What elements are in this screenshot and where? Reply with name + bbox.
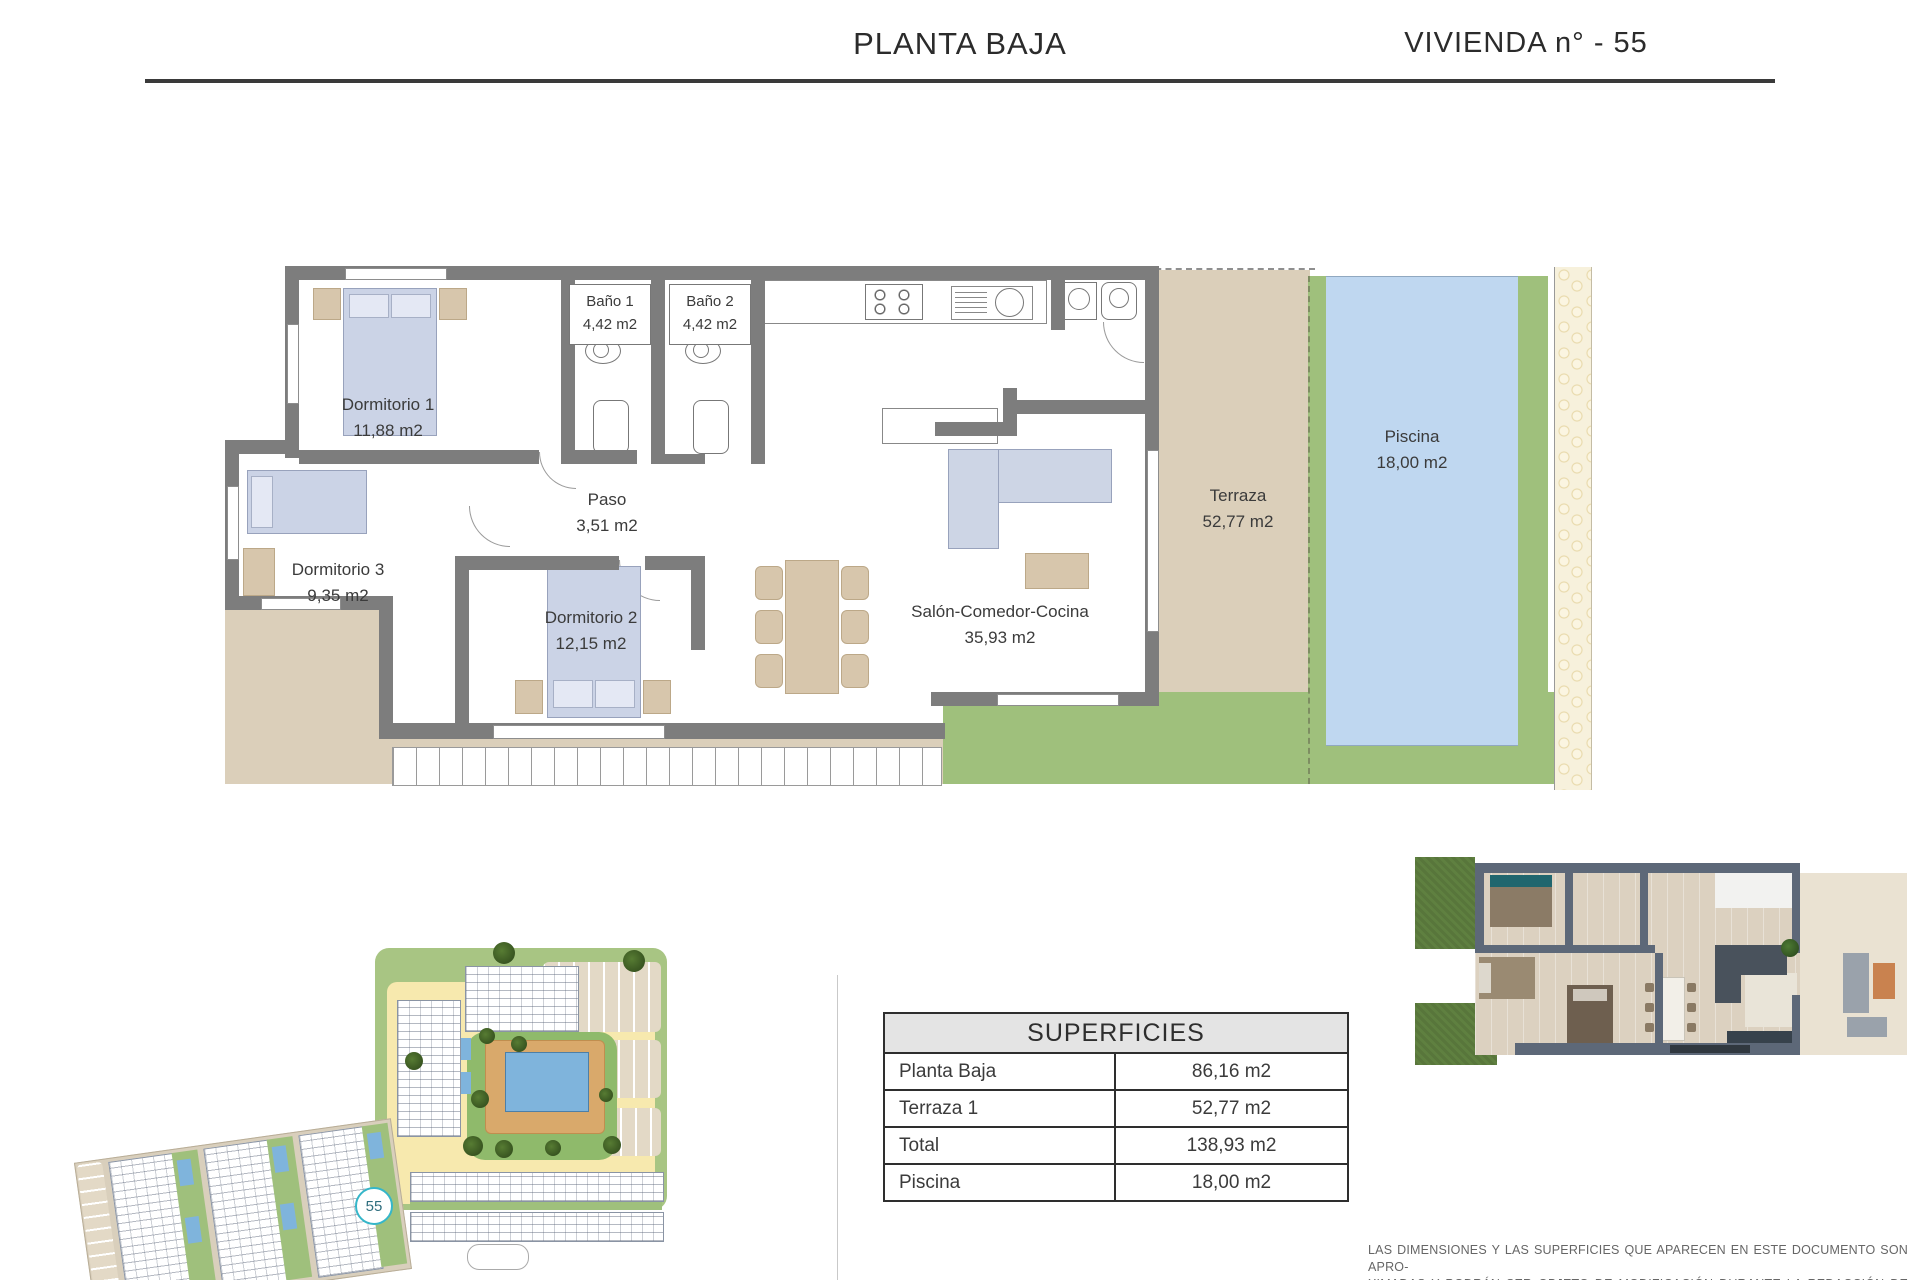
render-white-room — [1715, 873, 1795, 908]
nightstand — [515, 680, 543, 714]
page-title: PLANTA BAJA — [660, 26, 1260, 62]
chair — [841, 566, 869, 600]
sliding-door — [997, 694, 1119, 706]
wall — [575, 454, 615, 464]
wall — [751, 280, 765, 464]
room-name: Paso — [527, 487, 687, 513]
room-name: Dormitorio 1 — [288, 392, 488, 418]
room-name: Baño 1 — [570, 290, 650, 313]
render-3d — [1415, 845, 1912, 1067]
render-chair — [1645, 1003, 1654, 1012]
window — [345, 268, 447, 280]
wall — [645, 556, 705, 570]
shower — [593, 400, 629, 454]
tree-icon — [511, 1036, 527, 1052]
patio-left — [225, 610, 383, 784]
drainboard — [955, 291, 987, 313]
render-wall — [1792, 995, 1800, 1055]
disclaimer: LAS DIMENSIONES Y LAS SUPERFICIES QUE AP… — [1368, 1242, 1908, 1280]
site-entrance — [467, 1244, 529, 1270]
row-value: 86,16 m2 — [1116, 1054, 1347, 1089]
wall — [651, 280, 665, 464]
room-area: 3,51 m2 — [527, 513, 687, 539]
render-plant — [1781, 939, 1799, 957]
wall — [665, 454, 705, 464]
render-chair — [1687, 1003, 1696, 1012]
tree-icon — [463, 1136, 483, 1156]
surfaces-table: SUPERFICIES Planta Baja 86,16 m2 Terraza… — [883, 1012, 1349, 1202]
sink-icon — [995, 288, 1024, 317]
room-name: Dormitorio 3 — [238, 557, 438, 583]
tree-icon — [545, 1140, 561, 1156]
row-label: Planta Baja — [885, 1054, 1116, 1089]
room-name: Baño 2 — [670, 290, 750, 313]
header-rule — [145, 79, 1775, 83]
site-plan: 55 — [75, 940, 675, 1280]
door-arc — [469, 506, 510, 547]
tree-icon — [603, 1136, 621, 1154]
room-label-terraza: Terraza 52,77 m2 — [1138, 483, 1338, 535]
boiler-icon — [1109, 288, 1129, 308]
chair — [755, 566, 783, 600]
pillow — [595, 680, 635, 708]
chair — [841, 654, 869, 688]
render-rug — [1745, 973, 1797, 1027]
disclaimer-line: LAS DIMENSIONES Y LAS SUPERFICIES QUE AP… — [1368, 1242, 1908, 1276]
row-label: Terraza 1 — [885, 1091, 1116, 1126]
unit-55-label: 55 — [366, 1198, 383, 1215]
unit-title: VIVIENDA n° - 55 — [1296, 27, 1756, 60]
row-label: Piscina — [885, 1165, 1116, 1200]
row-label: Total — [885, 1128, 1116, 1163]
room-name: Terraza — [1138, 483, 1338, 509]
housing-block — [465, 966, 579, 1032]
lawn-strip-right — [1518, 276, 1548, 784]
render-outdoor-sofa — [1843, 953, 1869, 1013]
divider-line — [837, 975, 838, 1280]
room-area: 9,35 m2 — [238, 583, 438, 609]
room-area: 12,15 m2 — [491, 631, 691, 657]
render-sofa-chaise — [1715, 945, 1741, 1003]
room-name: Salón-Comedor-Cocina — [875, 599, 1125, 625]
terrace-floor — [1145, 270, 1310, 692]
room-label-dormitorio2: Dormitorio 2 12,15 m2 — [491, 605, 691, 657]
unit-55-badge: 55 — [355, 1187, 393, 1225]
room-label-bano2: Baño 2 4,42 m2 — [669, 284, 751, 345]
mini-pool — [461, 1038, 471, 1060]
wall — [469, 556, 619, 570]
table-row: Terraza 1 52,77 m2 — [883, 1091, 1349, 1128]
render-wall — [1475, 863, 1800, 873]
mini-pool — [461, 1072, 471, 1094]
tree-icon — [471, 1090, 489, 1108]
sofa-chaise — [948, 449, 999, 549]
surfaces-table-title: SUPERFICIES — [883, 1012, 1349, 1054]
render-chair — [1645, 983, 1654, 992]
room-area: 4,42 m2 — [670, 313, 750, 336]
render-chair — [1687, 1023, 1696, 1032]
row-value: 52,77 m2 — [1116, 1091, 1347, 1126]
room-label-salon: Salón-Comedor-Cocina 35,93 m2 — [875, 599, 1125, 651]
render-pillow — [1573, 989, 1607, 1001]
wall — [455, 556, 469, 739]
plan-sheet: PLANTA BAJA VIVIENDA n° - 55 — [0, 0, 1920, 1280]
render-wall — [1475, 863, 1484, 951]
plot-boundary-dashed — [1145, 268, 1315, 270]
render-wall — [1565, 863, 1573, 948]
dining-table — [785, 560, 839, 694]
render-pillow — [1479, 963, 1491, 993]
nightstand — [313, 288, 341, 320]
render-lounger — [1873, 963, 1895, 999]
render-tv-unit — [1670, 1045, 1750, 1053]
disclaimer-line: XIMADAS Y PODRÁN SER OBJETO DE MODIFICAC… — [1368, 1276, 1908, 1280]
render-grass — [1415, 857, 1475, 949]
door-arc — [1103, 322, 1144, 363]
lawn-band — [410, 1202, 662, 1210]
stove-icon — [865, 284, 923, 320]
window — [227, 486, 239, 560]
pillow — [553, 680, 593, 708]
chair — [755, 654, 783, 688]
table-row: Piscina 18,00 m2 — [883, 1165, 1349, 1202]
room-label-dormitorio3: Dormitorio 3 9,35 m2 — [238, 557, 438, 609]
room-label-piscina: Piscina 18,00 m2 — [1312, 424, 1512, 476]
room-name: Piscina — [1312, 424, 1512, 450]
row-value: 18,00 m2 — [1116, 1165, 1347, 1200]
gravel-border — [1554, 267, 1592, 790]
coffee-table — [1025, 553, 1089, 589]
tree-icon — [493, 942, 515, 964]
room-area: 18,00 m2 — [1312, 450, 1512, 476]
render-chair — [1645, 1023, 1654, 1032]
render-outdoor-sofa — [1847, 1017, 1887, 1037]
room-area: 11,88 m2 — [288, 418, 488, 444]
chair — [755, 610, 783, 644]
table-row: Planta Baja 86,16 m2 — [883, 1054, 1349, 1091]
housing-block — [397, 1000, 461, 1137]
wall — [299, 450, 539, 464]
room-area: 4,42 m2 — [570, 313, 650, 336]
sliding-door — [1147, 450, 1159, 632]
washer-drum-icon — [1068, 288, 1090, 310]
nightstand — [439, 288, 467, 320]
render-wall — [1640, 863, 1648, 948]
room-label-bano1: Baño 1 4,42 m2 — [569, 284, 651, 345]
chair — [841, 610, 869, 644]
tree-icon — [623, 950, 645, 972]
room-name: Dormitorio 2 — [491, 605, 691, 631]
render-bed-headboard — [1490, 875, 1552, 887]
render-chair — [1687, 983, 1696, 992]
wall — [691, 570, 705, 650]
render-wall — [1655, 953, 1663, 1048]
tree-icon — [495, 1140, 513, 1158]
tree-icon — [479, 1028, 495, 1044]
sliding-door — [493, 725, 665, 739]
table-row: Total 138,93 m2 — [883, 1128, 1349, 1165]
housing-row — [410, 1212, 664, 1242]
wall — [1017, 400, 1145, 414]
housing-row — [410, 1172, 664, 1202]
tree-icon — [405, 1052, 423, 1070]
shower — [693, 400, 729, 454]
room-area: 52,77 m2 — [1138, 509, 1338, 535]
wall — [1003, 388, 1017, 436]
room-area: 35,93 m2 — [875, 625, 1125, 651]
exterior-stairs — [392, 747, 942, 786]
room-label-dormitorio1: Dormitorio 1 11,88 m2 — [288, 392, 488, 444]
pillow — [391, 294, 431, 318]
tree-icon — [599, 1088, 613, 1102]
wall — [1051, 280, 1065, 330]
nightstand — [643, 680, 671, 714]
pillow — [349, 294, 389, 318]
room-label-paso: Paso 3,51 m2 — [527, 487, 687, 539]
pool-area — [1324, 276, 1520, 746]
wall — [379, 596, 393, 739]
communal-pool — [505, 1052, 589, 1112]
floor-plan: Dormitorio 1 11,88 m2 Baño 1 4,42 m2 Bañ… — [225, 260, 1590, 790]
row-value: 138,93 m2 — [1116, 1128, 1347, 1163]
pillow — [251, 476, 273, 528]
